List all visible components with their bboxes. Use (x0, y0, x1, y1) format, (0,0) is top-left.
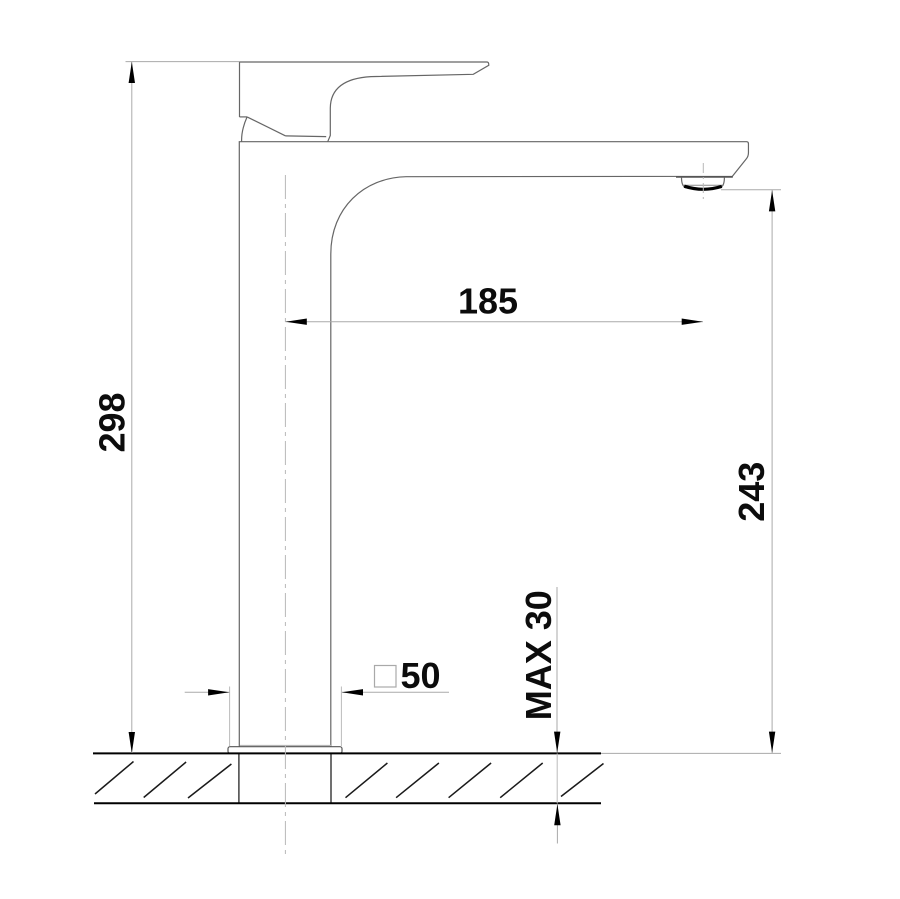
svg-text:50: 50 (401, 655, 441, 696)
svg-text:185: 185 (458, 281, 518, 322)
svg-text:243: 243 (731, 462, 772, 522)
svg-text:298: 298 (92, 392, 133, 452)
svg-text:MAX 30: MAX 30 (518, 590, 559, 720)
